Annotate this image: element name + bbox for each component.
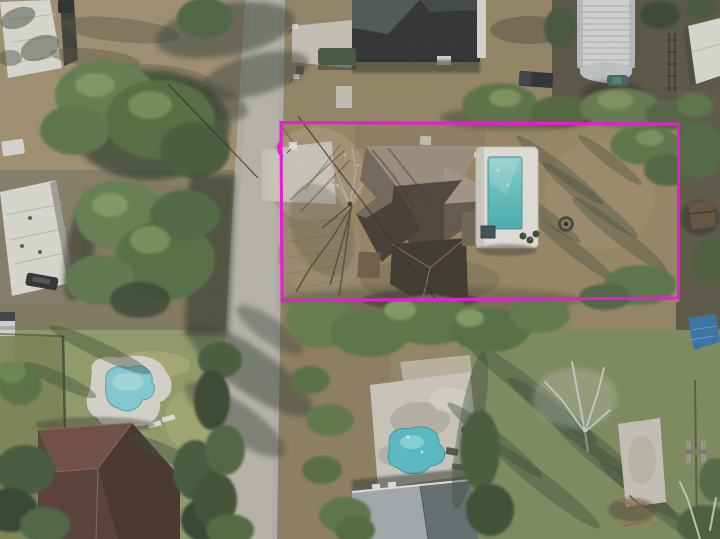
aerial-photo-canvas [0,0,720,539]
photo-grain-overlay [0,0,720,539]
aerial-photo [0,0,720,539]
